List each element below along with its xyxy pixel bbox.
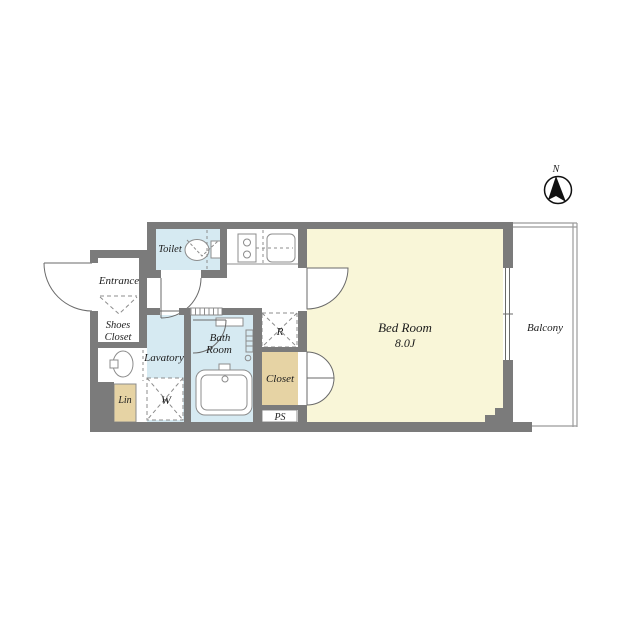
- label-bath-room-1: Bath: [210, 332, 231, 344]
- label-shoes-closet-2: Closet: [105, 332, 133, 343]
- toilet-bowl-icon: [185, 240, 209, 261]
- bathtub-icon: [196, 370, 252, 415]
- label-bedroom-size: 8.0J: [395, 336, 416, 350]
- label-lavatory: Lavatory: [143, 352, 184, 364]
- label-washer-space: W: [161, 393, 172, 407]
- label-linen: Lin: [117, 395, 131, 406]
- label-entrance: Entrance: [98, 275, 139, 287]
- label-closet: Closet: [266, 373, 295, 385]
- label-bedroom: Bed Room: [378, 320, 432, 335]
- entrance-door-arc: [44, 263, 92, 311]
- bath-shelf-icon: [216, 318, 243, 326]
- washbasin-faucet-icon: [110, 360, 118, 368]
- label-shoes-closet-1: Shoes: [106, 320, 131, 331]
- label-toilet: Toilet: [158, 244, 183, 255]
- label-balcony: Balcony: [527, 322, 563, 334]
- north-arrow-icon: [545, 176, 572, 204]
- bath-threshold-hatch: [190, 308, 222, 315]
- label-bath-room-2: Room: [205, 344, 232, 356]
- bath-step-icon: [219, 364, 230, 370]
- label-north: N: [552, 164, 561, 175]
- label-fridge-space: R: [276, 326, 284, 338]
- floor-plan-page: Toilet Entrance Shoes Closet Lavatory Ba…: [0, 0, 640, 640]
- floor-plan: Toilet Entrance Shoes Closet Lavatory Ba…: [0, 0, 640, 640]
- label-pipe-space: PS: [273, 412, 285, 423]
